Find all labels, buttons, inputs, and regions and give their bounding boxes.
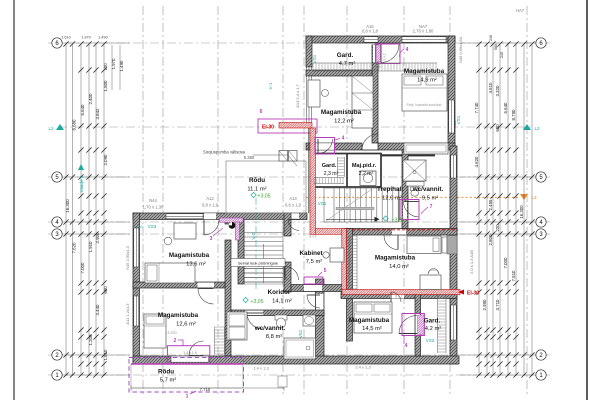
svg-text:Gard.: Gard. <box>337 52 354 59</box>
svg-text:Koridor: Koridor <box>268 289 291 296</box>
svg-text:6.640: 6.640 <box>80 104 85 116</box>
svg-text:2.990: 2.990 <box>482 299 487 311</box>
svg-text:Rõdu: Rõdu <box>249 177 265 184</box>
svg-text:12,2 m²: 12,2 m² <box>334 119 354 125</box>
svg-text:Magamistuba: Magamistuba <box>349 317 390 324</box>
svg-text:2.900: 2.900 <box>95 232 100 244</box>
svg-text:3.440: 3.440 <box>95 304 100 316</box>
svg-text:VS1: VS1 <box>456 115 461 124</box>
svg-text:3: 3 <box>210 236 213 242</box>
svg-text:2.400: 2.400 <box>88 93 93 105</box>
svg-text:14,5 m²: 14,5 m² <box>362 326 382 332</box>
svg-text:8 x 2: 8 x 2 <box>384 234 391 238</box>
svg-text:2,0 x 1,3 A1B: 2,0 x 1,3 A1B <box>469 250 474 274</box>
svg-text:1,4 x 1,9: 1,4 x 1,9 <box>183 351 197 355</box>
svg-text:1,4 x 1,3: 1,4 x 1,3 <box>253 366 269 371</box>
svg-text:7.620: 7.620 <box>72 242 77 254</box>
svg-text:12,6 m²: 12,6 m² <box>176 322 196 328</box>
svg-text:1.610: 1.610 <box>103 349 108 361</box>
svg-text:V-1: V-1 <box>268 82 273 89</box>
svg-text:16.300: 16.300 <box>519 205 524 219</box>
svg-text:7.000: 7.000 <box>80 262 85 274</box>
svg-text:7.510: 7.510 <box>511 270 516 282</box>
svg-text:A11 1,2x1,3: A11 1,2x1,3 <box>125 303 130 325</box>
svg-text:240: 240 <box>489 35 493 41</box>
svg-text:4,2 m²: 4,2 m² <box>425 326 441 332</box>
svg-text:Seinal luuk pööningule: Seinal luuk pööningule <box>238 261 279 266</box>
svg-text:1.490: 1.490 <box>98 36 108 40</box>
svg-text:VS1: VS1 <box>318 201 327 206</box>
svg-text:Vaade 2: Vaade 2 <box>79 175 84 192</box>
svg-text:1: 1 <box>186 394 189 400</box>
svg-text:14,9 m²: 14,9 m² <box>417 78 437 84</box>
svg-text:VS2: VS2 <box>426 338 435 343</box>
svg-text:2: 2 <box>174 338 177 344</box>
svg-text:580: 580 <box>494 44 498 50</box>
svg-text:Magamistuba: Magamistuba <box>321 109 362 116</box>
svg-text:A13: A13 <box>289 196 297 201</box>
svg-text:Gard.: Gard. <box>424 318 441 325</box>
svg-text:L2: L2 <box>534 126 540 131</box>
svg-text:1.490: 1.490 <box>119 60 124 72</box>
svg-text:4,7 m²: 4,7 m² <box>339 61 355 67</box>
svg-text:1.610: 1.610 <box>61 36 71 40</box>
svg-text:8 x 2: 8 x 2 <box>283 277 290 281</box>
svg-text:8,8 m²: 8,8 m² <box>266 334 282 340</box>
svg-text:0,6 x 1,9: 0,6 x 1,9 <box>285 203 302 208</box>
svg-text:1.910: 1.910 <box>88 241 93 253</box>
svg-text:9 x 2: 9 x 2 <box>383 53 387 60</box>
svg-text:600: 600 <box>495 124 500 132</box>
svg-text:2,76 x 1,80: 2,76 x 1,80 <box>413 29 434 34</box>
svg-text:100: 100 <box>103 63 108 71</box>
svg-text:wc/vannit.: wc/vannit. <box>412 186 444 193</box>
svg-text:V52: V52 <box>298 329 303 338</box>
svg-text:A12: A12 <box>206 196 214 201</box>
svg-text:2,4 x 1,3: 2,4 x 1,3 <box>355 365 371 370</box>
svg-text:VS1: VS1 <box>312 54 317 63</box>
svg-text:+3,05: +3,05 <box>257 194 270 200</box>
svg-text:8 x 2: 8 x 2 <box>396 295 403 299</box>
svg-text:8 x 2: 8 x 2 <box>310 235 317 239</box>
svg-text:5.360: 5.360 <box>244 155 255 160</box>
svg-text:+3,05: +3,05 <box>391 218 404 224</box>
svg-text:2.800: 2.800 <box>488 234 493 246</box>
svg-text:1.970: 1.970 <box>111 58 116 70</box>
svg-text:Rõdu: Rõdu <box>158 369 174 376</box>
svg-text:16.300: 16.300 <box>65 199 70 213</box>
svg-text:5: 5 <box>324 268 327 274</box>
svg-text:12,0 m²: 12,0 m² <box>382 196 402 202</box>
svg-text:14,1 m²: 14,1 m² <box>272 299 292 305</box>
svg-text:600: 600 <box>103 286 108 294</box>
svg-text:EI-30: EI-30 <box>467 291 479 297</box>
svg-text:L2: L2 <box>48 126 54 131</box>
svg-text:6: 6 <box>260 109 263 115</box>
svg-text:VS3: VS3 <box>148 224 157 229</box>
svg-text:Magamistuba: Magamistuba <box>169 252 210 259</box>
svg-text:6 x 2: 6 x 2 <box>378 60 382 67</box>
svg-text:5,7 m²: 5,7 m² <box>160 378 176 384</box>
svg-text:Magamistuba: Magamistuba <box>404 68 445 75</box>
svg-text:2,2 m²: 2,2 m² <box>359 171 374 177</box>
svg-text:6.640: 6.640 <box>503 102 508 114</box>
svg-text:Maj.pid.r.: Maj.pid.r. <box>352 163 377 169</box>
svg-text:1,70 x 1,30: 1,70 x 1,30 <box>143 205 164 210</box>
svg-text:3.320: 3.320 <box>495 85 500 97</box>
svg-text:8.790: 8.790 <box>511 109 516 121</box>
svg-text:+3,05: +3,05 <box>250 299 263 305</box>
svg-text:Soojuspumba välisosa: Soojuspumba välisosa <box>203 150 246 155</box>
svg-text:3.710: 3.710 <box>495 299 500 311</box>
svg-text:wc/vannit.: wc/vannit. <box>254 325 286 332</box>
svg-text:N44: N44 <box>149 198 157 203</box>
svg-text:EI-30: EI-30 <box>262 125 274 131</box>
svg-text:7: 7 <box>430 204 433 210</box>
svg-text:220: 220 <box>495 224 500 232</box>
svg-text:0,6 x 1,8: 0,6 x 1,8 <box>362 29 379 34</box>
svg-text:4: 4 <box>405 343 408 349</box>
svg-text:0,8 x 1,9: 0,8 x 1,9 <box>202 203 219 208</box>
svg-text:L3: L3 <box>531 195 537 200</box>
svg-text:1.200: 1.200 <box>88 334 93 346</box>
svg-text:Trepihall: Trepihall <box>377 186 403 193</box>
svg-text:HA7: HA7 <box>516 8 525 13</box>
svg-text:2.090: 2.090 <box>103 154 108 166</box>
svg-text:N45 0,95x1,60: N45 0,95x1,60 <box>458 36 463 63</box>
svg-text:14,0 m²: 14,0 m² <box>389 264 409 270</box>
svg-text:11,1 m²: 11,1 m² <box>247 187 266 193</box>
svg-text:9,5 m²: 9,5 m² <box>422 196 438 202</box>
svg-text:N45 2,90x1,3: N45 2,90x1,3 <box>125 245 130 270</box>
svg-text:V-2: V-2 <box>251 232 256 239</box>
svg-text:Gard.: Gard. <box>322 163 337 169</box>
svg-text:2,3 m²: 2,3 m² <box>324 171 339 177</box>
svg-text:1.500: 1.500 <box>103 80 108 92</box>
svg-text:4.510: 4.510 <box>488 82 493 94</box>
svg-text:Kabinet: Kabinet <box>299 250 323 257</box>
svg-text:7.710: 7.710 <box>200 387 211 392</box>
svg-text:4: 4 <box>342 136 345 142</box>
svg-text:Magamistuba: Magamistuba <box>158 312 199 319</box>
svg-text:3.842: 3.842 <box>95 108 100 120</box>
svg-text:1.970: 1.970 <box>81 36 91 40</box>
svg-text:3.370: 3.370 <box>168 331 177 335</box>
svg-text:A14 2,4 x 1,7: A14 2,4 x 1,7 <box>295 83 300 107</box>
svg-text:240: 240 <box>500 52 504 58</box>
svg-text:8.680: 8.680 <box>72 119 77 131</box>
svg-text:Magamistuba: Magamistuba <box>375 255 416 262</box>
svg-text:7.000: 7.000 <box>503 257 508 269</box>
svg-text:7,5 m²: 7,5 m² <box>306 259 322 265</box>
svg-text:7.740: 7.740 <box>474 102 479 114</box>
svg-text:Parij. kushetid soovitud: Parij. kushetid soovitud <box>407 103 442 107</box>
svg-text:2.455: 2.455 <box>488 199 493 211</box>
svg-text:4: 4 <box>406 47 409 53</box>
svg-text:4.620: 4.620 <box>474 156 479 168</box>
svg-text:13,6 m²: 13,6 m² <box>186 262 206 268</box>
